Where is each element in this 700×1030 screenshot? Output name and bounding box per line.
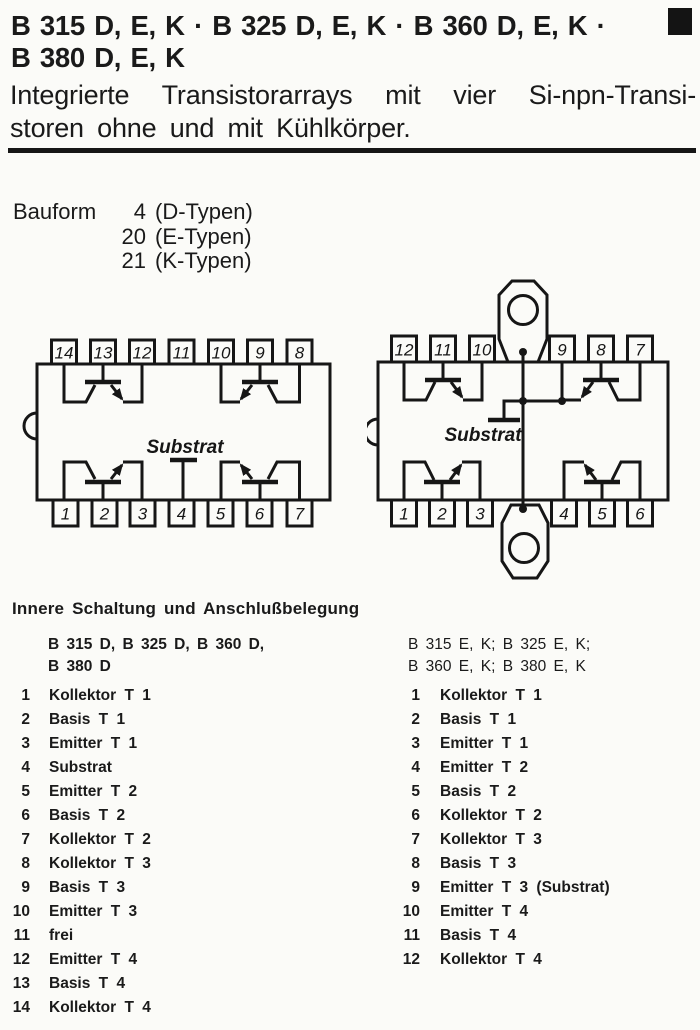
substrate-label: Substrat bbox=[146, 437, 224, 458]
substrate-terminal bbox=[170, 460, 197, 500]
bauform-row: 4(D-Typen) bbox=[116, 200, 253, 225]
emitter-arrow bbox=[111, 465, 122, 479]
pin-number: 6 bbox=[0, 804, 30, 828]
pin-number: 11 bbox=[434, 341, 452, 360]
pinout-title-line-2: B 360 E, K; B 380 E, K bbox=[408, 656, 610, 678]
page-title: B 315 D, E, K · B 325 D, E, K · B 360 D,… bbox=[11, 10, 606, 74]
bauform-number: 4 bbox=[116, 200, 146, 225]
package-notch bbox=[24, 413, 37, 439]
pin-number: 5 bbox=[597, 505, 607, 524]
pin-list-item: 10 Emitter T 3 bbox=[0, 900, 264, 924]
pin-function: Basis T 4 bbox=[49, 972, 125, 996]
pin-list: 1 Kollektor T 1 2 Basis T 1 3 Emitter T … bbox=[0, 684, 264, 1020]
bauform-row: 20(E-Typen) bbox=[116, 225, 253, 250]
pin-number: 3 bbox=[138, 505, 148, 524]
pin-number: 9 bbox=[0, 876, 30, 900]
pin-number: 2 bbox=[99, 505, 110, 524]
pin-list-item: 12 Emitter T 4 bbox=[0, 948, 264, 972]
pin-function: Kollektor T 1 bbox=[440, 684, 542, 708]
pin-function: Emitter T 2 bbox=[440, 756, 528, 780]
pin-number: 1 bbox=[399, 505, 408, 524]
pin-number: 7 bbox=[390, 828, 420, 852]
pin-list-item: 2 Basis T 1 bbox=[0, 708, 264, 732]
pin-function: Kollektor T 2 bbox=[49, 828, 151, 852]
pin-function: Emitter T 4 bbox=[49, 948, 137, 972]
pin-number: 2 bbox=[390, 708, 420, 732]
pin-number: 13 bbox=[94, 344, 113, 363]
pin-number: 8 bbox=[0, 852, 30, 876]
pin-list-item: 8 Kollektor T 3 bbox=[0, 852, 264, 876]
pin-number: 12 bbox=[390, 948, 420, 972]
pin-number: 3 bbox=[390, 732, 420, 756]
pin-function: frei bbox=[49, 924, 73, 948]
pin-list-item: 6 Kollektor T 2 bbox=[390, 804, 610, 828]
pin-list-item: 12 Kollektor T 4 bbox=[390, 948, 610, 972]
pin-list-item: 11 frei bbox=[0, 924, 264, 948]
pin-function: Kollektor T 2 bbox=[440, 804, 542, 828]
pin-function: Emitter T 1 bbox=[49, 732, 137, 756]
pin-number: 6 bbox=[255, 505, 265, 524]
header-divider bbox=[8, 148, 696, 153]
emitter-arrow bbox=[241, 385, 252, 399]
pin-number: 8 bbox=[390, 852, 420, 876]
emitter-arrow bbox=[241, 465, 252, 479]
bauform-row: 21(K-Typen) bbox=[116, 249, 253, 274]
emitter-arrow bbox=[111, 385, 122, 399]
pin-function: Emitter T 2 bbox=[49, 780, 137, 804]
pin-function: Kollektor T 3 bbox=[49, 852, 151, 876]
pin-number: 12 bbox=[395, 341, 414, 360]
pin-number: 6 bbox=[635, 505, 645, 524]
pin-function: Basis T 3 bbox=[49, 876, 125, 900]
pin-function: Substrat bbox=[49, 756, 112, 780]
bauform-type: (D-Typen) bbox=[155, 199, 253, 224]
pin-list-item: 3 Emitter T 1 bbox=[0, 732, 264, 756]
pinout-column-title: B 315 E, K; B 325 E, K; B 360 E, K; B 38… bbox=[408, 634, 610, 677]
emitter-arrow bbox=[451, 382, 462, 397]
pin-list-item: 5 Basis T 2 bbox=[390, 780, 610, 804]
emitter-arrow bbox=[582, 382, 593, 397]
pin-number: 12 bbox=[133, 344, 152, 363]
mounting-tab-bottom bbox=[502, 505, 548, 578]
pin-number: 6 bbox=[390, 804, 420, 828]
bauform-type: (K-Typen) bbox=[155, 248, 252, 273]
transistor-symbol-t2 bbox=[564, 462, 640, 500]
transistor-symbol-t3 bbox=[221, 364, 300, 402]
subtitle-line-2: storen ohne und mit Kühlkörper. bbox=[10, 112, 696, 145]
pin-list-item: 7 Kollektor T 2 bbox=[0, 828, 264, 852]
pin-number: 4 bbox=[177, 505, 186, 524]
substrate-label: Substrat bbox=[444, 425, 522, 446]
bauform-number: 21 bbox=[116, 249, 146, 274]
ic-package-14pin-diagram: Substrat 141312111098 1234567 bbox=[22, 333, 350, 533]
emitter-arrow bbox=[585, 465, 596, 480]
pin-number: 3 bbox=[0, 732, 30, 756]
datasheet-page: B 315 D, E, K · B 325 D, E, K · B 360 D,… bbox=[0, 0, 700, 1030]
pinout-column-title: B 315 D, B 325 D, B 360 D, B 380 D bbox=[48, 634, 264, 677]
pin-function: Basis T 1 bbox=[440, 708, 516, 732]
transistor-symbol-t1 bbox=[404, 462, 480, 500]
page-corner-marker bbox=[668, 8, 692, 35]
pin-list-item: 6 Basis T 2 bbox=[0, 804, 264, 828]
pin-number: 13 bbox=[0, 972, 30, 996]
pin-list-item: 4 Emitter T 2 bbox=[390, 756, 610, 780]
transistor-symbol-t1 bbox=[64, 462, 142, 500]
pin-function: Kollektor T 1 bbox=[49, 684, 151, 708]
pin-number: 14 bbox=[55, 344, 74, 363]
pin-number: 8 bbox=[295, 344, 305, 363]
pin-number: 1 bbox=[0, 684, 30, 708]
pin-row-top: 141312111098 bbox=[52, 340, 313, 364]
pin-number: 10 bbox=[390, 900, 420, 924]
pin-number: 8 bbox=[596, 341, 606, 360]
package-notch bbox=[367, 419, 378, 445]
pin-function: Basis T 2 bbox=[49, 804, 125, 828]
pin-row-bottom: 1234567 bbox=[53, 500, 312, 526]
pinout-title-line-2: B 380 D bbox=[48, 656, 264, 678]
pin-number: 4 bbox=[559, 505, 568, 524]
pin-list-item: 9 Emitter T 3 (Substrat) bbox=[390, 876, 610, 900]
subtitle-line-1: Integrierte Transistorarrays mit vier Si… bbox=[10, 79, 696, 112]
pin-list-item: 14 Kollektor T 4 bbox=[0, 996, 264, 1020]
pin-number: 4 bbox=[0, 756, 30, 780]
pin-number: 14 bbox=[0, 996, 30, 1020]
pin-number: 5 bbox=[0, 780, 30, 804]
pin-function: Kollektor T 4 bbox=[49, 996, 151, 1020]
page-subtitle: Integrierte Transistorarrays mit vier Si… bbox=[10, 79, 696, 145]
pin-number: 9 bbox=[557, 341, 567, 360]
pin-number: 7 bbox=[295, 505, 305, 524]
pin-function: Basis T 3 bbox=[440, 852, 516, 876]
pin-function: Kollektor T 3 bbox=[440, 828, 542, 852]
transistor-symbol-t3 bbox=[562, 362, 640, 400]
pin-function: Basis T 4 bbox=[440, 924, 516, 948]
pin-number: 5 bbox=[216, 505, 226, 524]
pin-function: Kollektor T 4 bbox=[440, 948, 542, 972]
pin-number: 10 bbox=[212, 344, 231, 363]
pin-number: 11 bbox=[0, 924, 30, 948]
pinout-column-d-types: B 315 D, B 325 D, B 360 D, B 380 D 1 Kol… bbox=[0, 634, 264, 1020]
pin-number: 7 bbox=[635, 341, 645, 360]
transistor-symbol-t4 bbox=[404, 362, 482, 400]
pin-number: 1 bbox=[390, 684, 420, 708]
bauform-section: Bauform 4(D-Typen) 20(E-Typen) 21(K-Type… bbox=[13, 200, 253, 274]
pin-number: 4 bbox=[390, 756, 420, 780]
bauform-number: 20 bbox=[116, 225, 146, 250]
pin-number: 11 bbox=[173, 344, 191, 363]
pin-number: 5 bbox=[390, 780, 420, 804]
pinout-title-line-1: B 315 E, K; B 325 E, K; bbox=[408, 634, 610, 656]
pinout-heading: Innere Schaltung und Anschlußbelegung bbox=[12, 599, 359, 619]
pin-number: 2 bbox=[0, 708, 30, 732]
pin-number: 12 bbox=[0, 948, 30, 972]
transistor-symbol-t2 bbox=[221, 462, 300, 500]
pin-function: Emitter T 1 bbox=[440, 732, 528, 756]
pin-list-item: 7 Kollektor T 3 bbox=[390, 828, 610, 852]
pin-list-item: 3 Emitter T 1 bbox=[390, 732, 610, 756]
pin-number: 7 bbox=[0, 828, 30, 852]
pin-list-item: 4 Substrat bbox=[0, 756, 264, 780]
pin-number: 11 bbox=[390, 924, 420, 948]
pin-function: Basis T 2 bbox=[440, 780, 516, 804]
pin-list-item: 5 Emitter T 2 bbox=[0, 780, 264, 804]
ic-package-12pin-heatsink-diagram: Substrat 121110987 123456 bbox=[367, 275, 675, 585]
pin-list-item: 1 Kollektor T 1 bbox=[390, 684, 610, 708]
pinout-title-line-1: B 315 D, B 325 D, B 360 D, bbox=[48, 634, 264, 656]
pin-function: Emitter T 4 bbox=[440, 900, 528, 924]
pin-list-item: 9 Basis T 3 bbox=[0, 876, 264, 900]
bauform-rows: 4(D-Typen) 20(E-Typen) 21(K-Typen) bbox=[116, 200, 253, 274]
pin-number: 10 bbox=[0, 900, 30, 924]
pin-function: Emitter T 3 bbox=[49, 900, 137, 924]
pin-function: Emitter T 3 (Substrat) bbox=[440, 876, 610, 900]
pin-function: Basis T 1 bbox=[49, 708, 125, 732]
pin-list: 1 Kollektor T 1 2 Basis T 1 3 Emitter T … bbox=[390, 684, 610, 972]
pin-list-item: 2 Basis T 1 bbox=[390, 708, 610, 732]
bauform-label: Bauform bbox=[13, 200, 116, 274]
pinout-column-ek-types: B 315 E, K; B 325 E, K; B 360 E, K; B 38… bbox=[390, 634, 610, 972]
title-line-1: B 315 D, E, K · B 325 D, E, K · B 360 D,… bbox=[11, 10, 606, 42]
pin-list-item: 10 Emitter T 4 bbox=[390, 900, 610, 924]
pin-list-item: 13 Basis T 4 bbox=[0, 972, 264, 996]
pin-number: 3 bbox=[475, 505, 485, 524]
pin-number: 9 bbox=[255, 344, 265, 363]
pin-number: 2 bbox=[436, 505, 447, 524]
pin-list-item: 1 Kollektor T 1 bbox=[0, 684, 264, 708]
bauform-type: (E-Typen) bbox=[155, 224, 252, 249]
transistor-symbol-t4 bbox=[64, 364, 142, 402]
pin-number: 10 bbox=[473, 341, 492, 360]
emitter-arrow bbox=[450, 465, 461, 480]
pin-list-item: 8 Basis T 3 bbox=[390, 852, 610, 876]
pin-number: 9 bbox=[390, 876, 420, 900]
pin-number: 1 bbox=[61, 505, 70, 524]
title-line-2: B 380 D, E, K bbox=[11, 42, 606, 74]
pin-list-item: 11 Basis T 4 bbox=[390, 924, 610, 948]
